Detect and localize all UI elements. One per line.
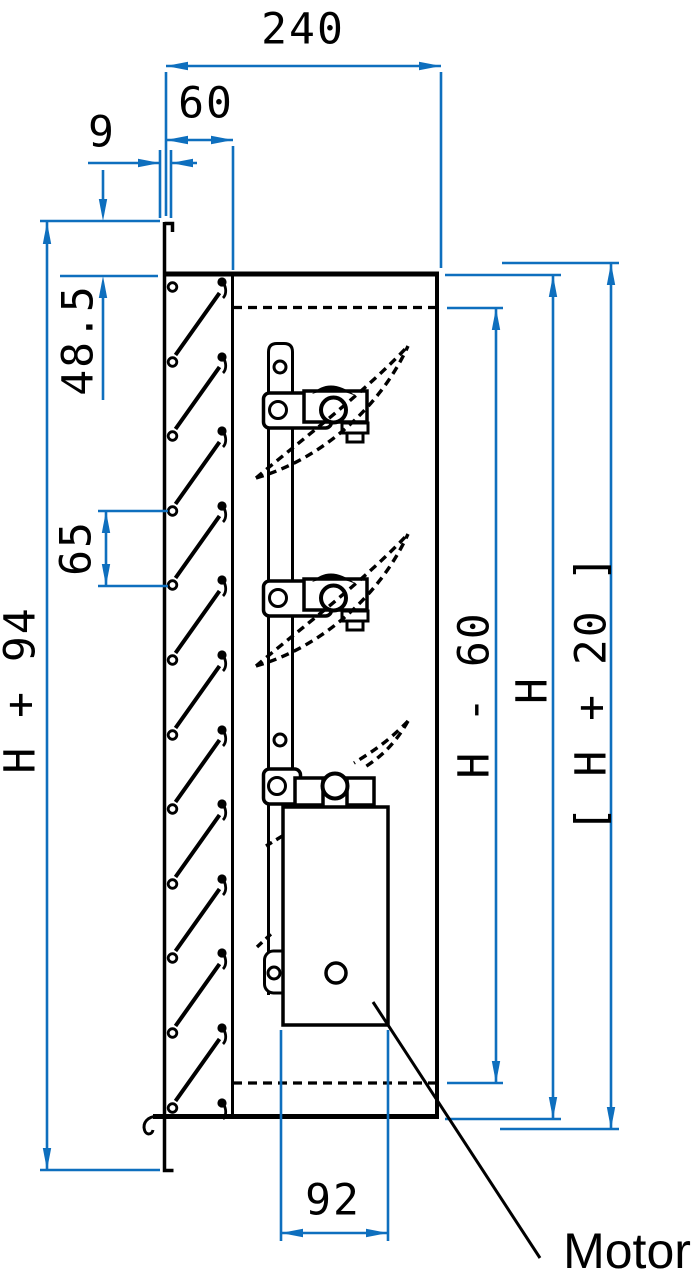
- dim-label-duct-height: H: [512, 676, 555, 704]
- bottom-flange: [165, 1117, 174, 1171]
- dimension-60: [166, 136, 233, 270]
- motor-callout-label: Motor: [563, 1226, 691, 1276]
- blade-clamp-assembly-1: [264, 385, 369, 442]
- dim-label-flange-offset: 48.5: [58, 284, 101, 396]
- dimension-65: [98, 511, 168, 586]
- blade-clamp-assembly-2: [264, 573, 369, 630]
- dim-label-installation-height: [ H + 20 ]: [571, 554, 614, 833]
- dim-label-louvre-depth: 60: [178, 83, 234, 126]
- technical-drawing-canvas: 240 60 9 48.5 65 H + 94 H - 60 H [ H + 2…: [0, 0, 695, 1280]
- blade-clamp-assembly-3: [264, 769, 375, 805]
- dim-label-motor-width: 92: [305, 1180, 361, 1223]
- dim-label-flange-lip: 9: [88, 112, 116, 155]
- dim-label-overall-depth: 240: [261, 9, 345, 52]
- motor-box: [268, 807, 388, 1025]
- dim-label-overall-height: H + 94: [0, 606, 43, 773]
- dim-label-louvre-pitch: 65: [56, 520, 99, 576]
- louvre-slats: [168, 277, 226, 1119]
- dim-label-blade-zone-height: H - 60: [454, 611, 497, 778]
